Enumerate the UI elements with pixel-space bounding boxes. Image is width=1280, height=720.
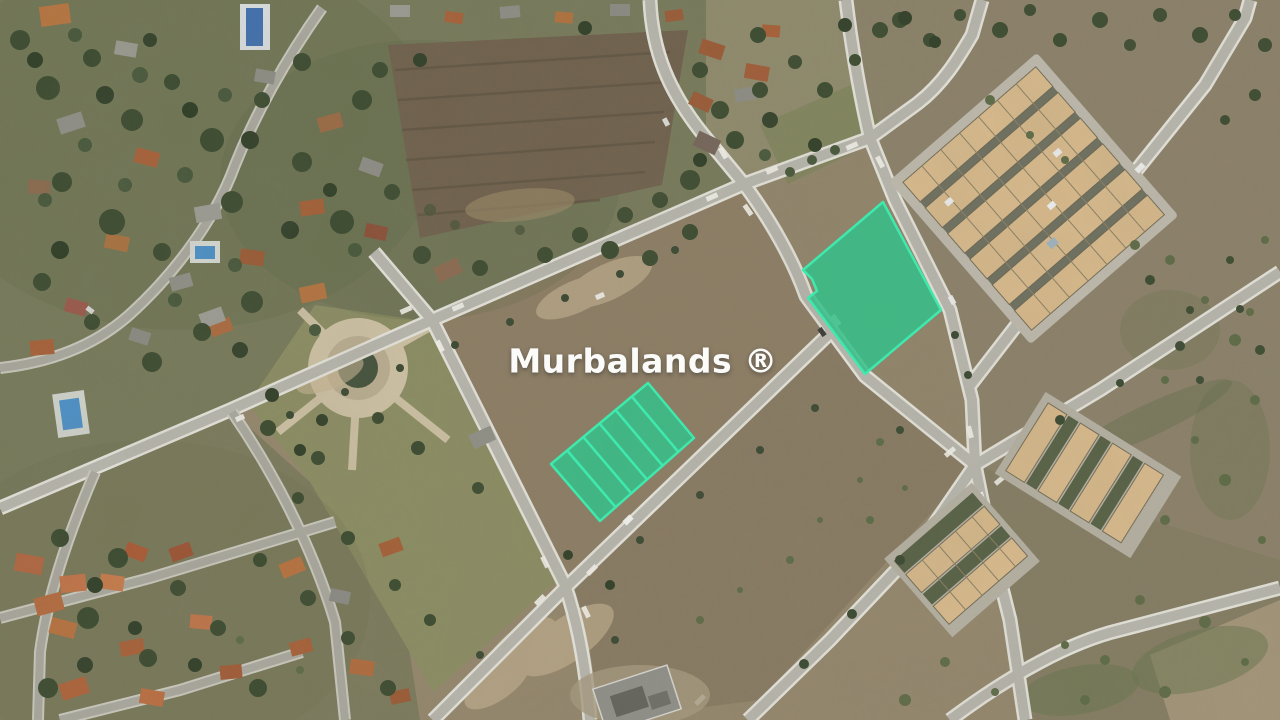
listing-photo: Murbalands ® bbox=[0, 0, 1280, 720]
watermark: Murbalands ® bbox=[508, 342, 777, 381]
